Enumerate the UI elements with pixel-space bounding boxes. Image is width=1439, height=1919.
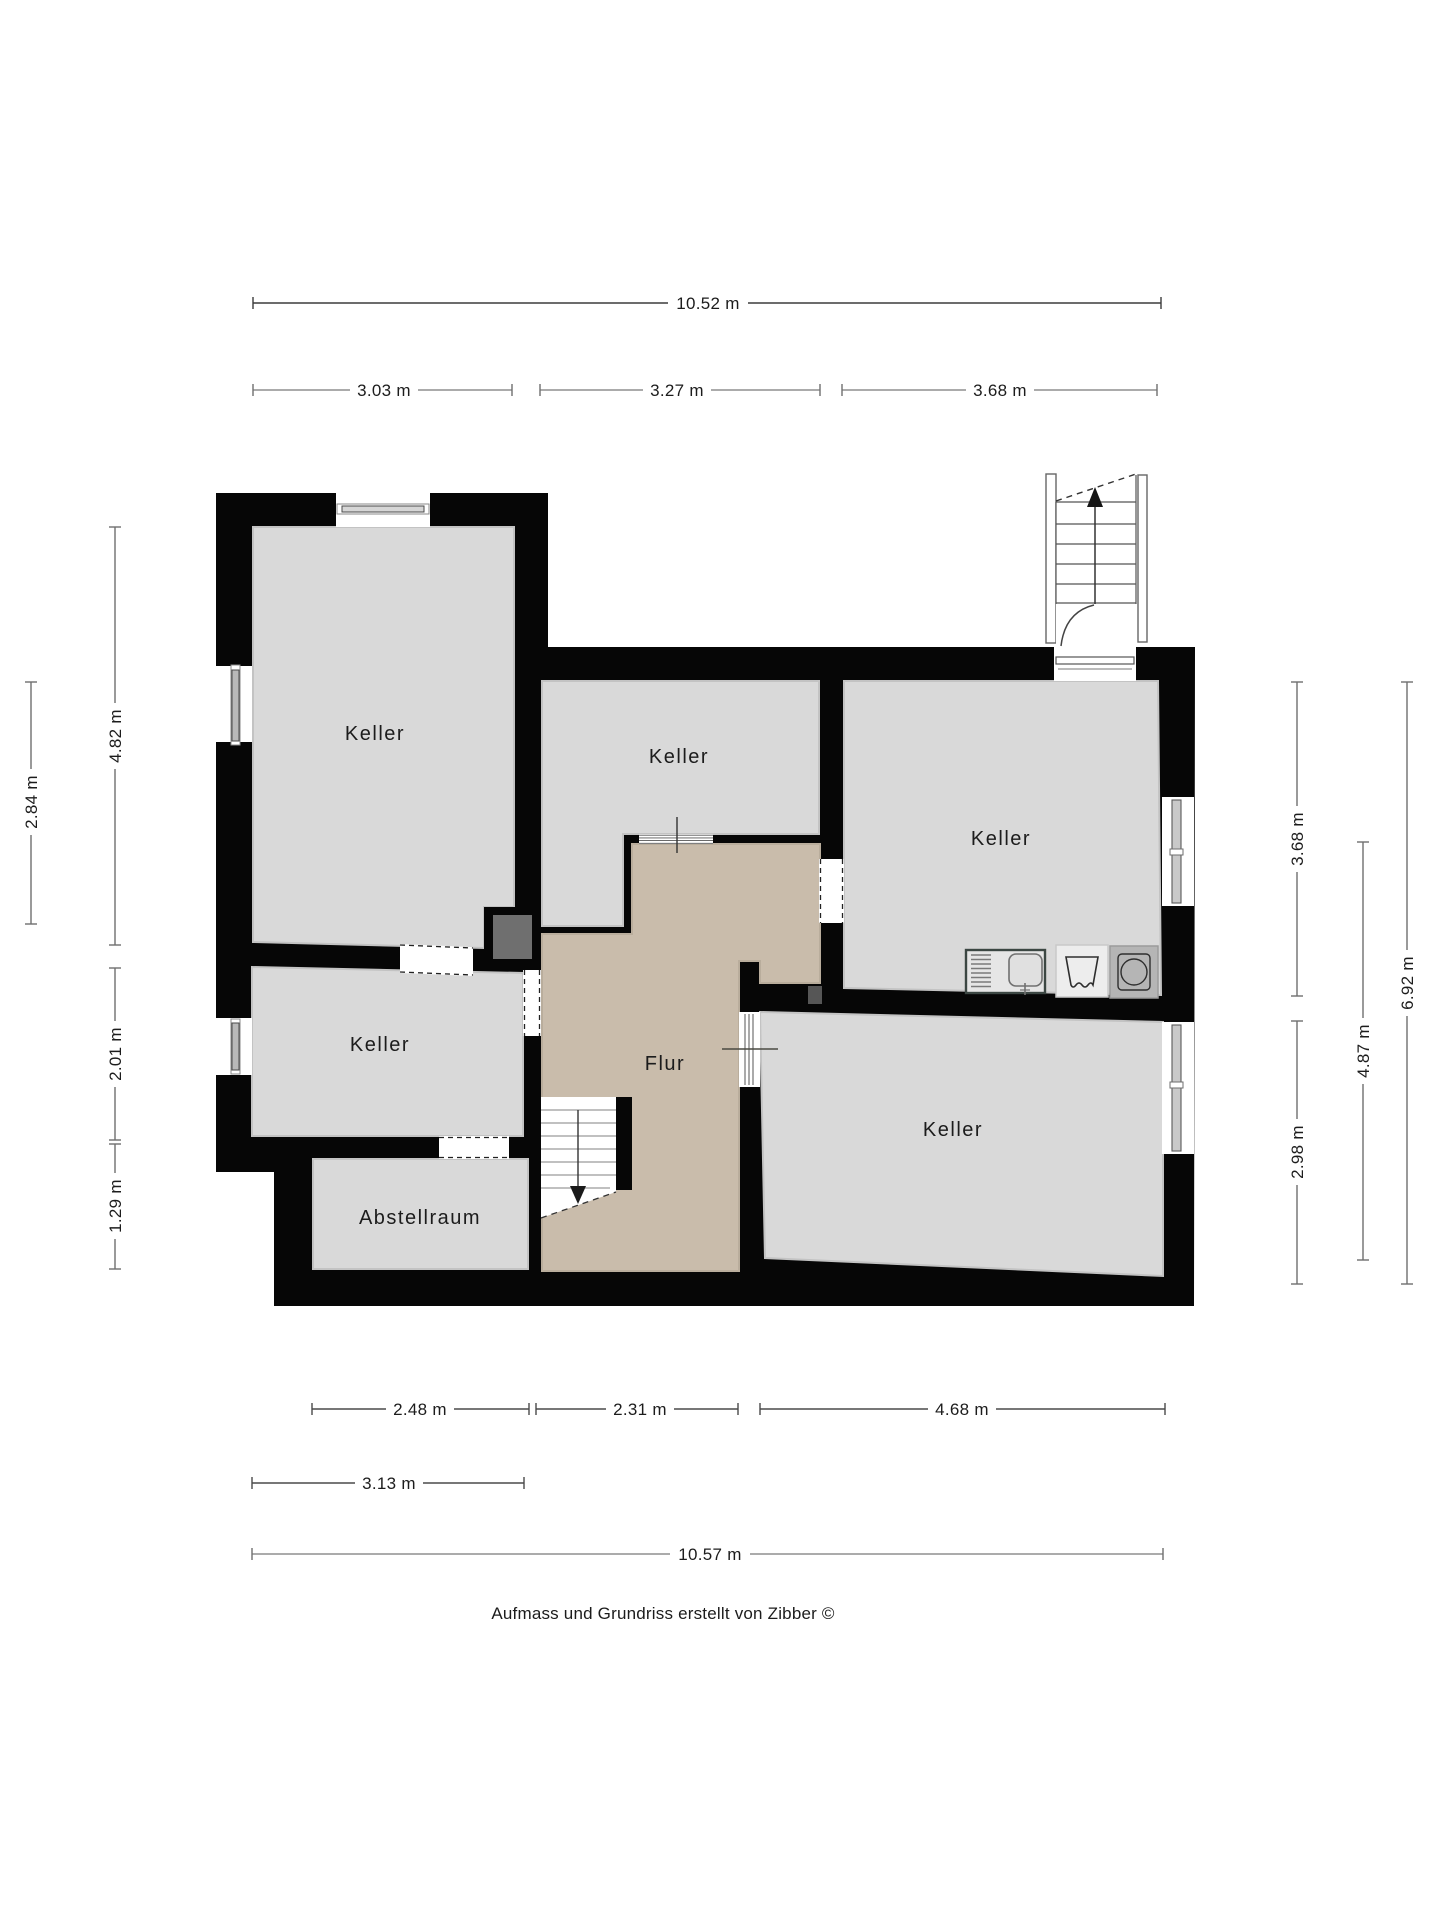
svg-text:6.92 m: 6.92 m bbox=[1398, 956, 1417, 1010]
svg-text:Aufmass und Grundriss erstellt: Aufmass und Grundriss erstellt von Zibbe… bbox=[491, 1604, 835, 1623]
svg-text:3.68 m: 3.68 m bbox=[1288, 812, 1307, 866]
svg-text:Keller: Keller bbox=[971, 828, 1031, 850]
svg-text:Keller: Keller bbox=[923, 1119, 983, 1141]
svg-text:Keller: Keller bbox=[649, 746, 709, 768]
svg-text:4.87 m: 4.87 m bbox=[1354, 1024, 1373, 1078]
svg-text:4.82 m: 4.82 m bbox=[106, 709, 125, 763]
svg-text:2.31 m: 2.31 m bbox=[613, 1400, 667, 1419]
svg-text:10.52 m: 10.52 m bbox=[676, 294, 740, 313]
svg-text:2.98 m: 2.98 m bbox=[1288, 1125, 1307, 1179]
svg-text:3.03 m: 3.03 m bbox=[357, 381, 411, 400]
svg-text:2.01 m: 2.01 m bbox=[106, 1027, 125, 1081]
svg-text:Keller: Keller bbox=[345, 723, 405, 745]
svg-text:10.57 m: 10.57 m bbox=[678, 1545, 742, 1564]
svg-text:Keller: Keller bbox=[350, 1034, 410, 1056]
svg-text:3.68 m: 3.68 m bbox=[973, 381, 1027, 400]
svg-text:3.27 m: 3.27 m bbox=[650, 381, 704, 400]
svg-text:2.84 m: 2.84 m bbox=[22, 775, 41, 829]
svg-text:2.48 m: 2.48 m bbox=[393, 1400, 447, 1419]
svg-text:Flur: Flur bbox=[645, 1053, 685, 1075]
svg-text:3.13 m: 3.13 m bbox=[362, 1474, 416, 1493]
svg-text:Abstellraum: Abstellraum bbox=[359, 1207, 481, 1229]
svg-text:1.29 m: 1.29 m bbox=[106, 1179, 125, 1233]
svg-text:4.68 m: 4.68 m bbox=[935, 1400, 989, 1419]
